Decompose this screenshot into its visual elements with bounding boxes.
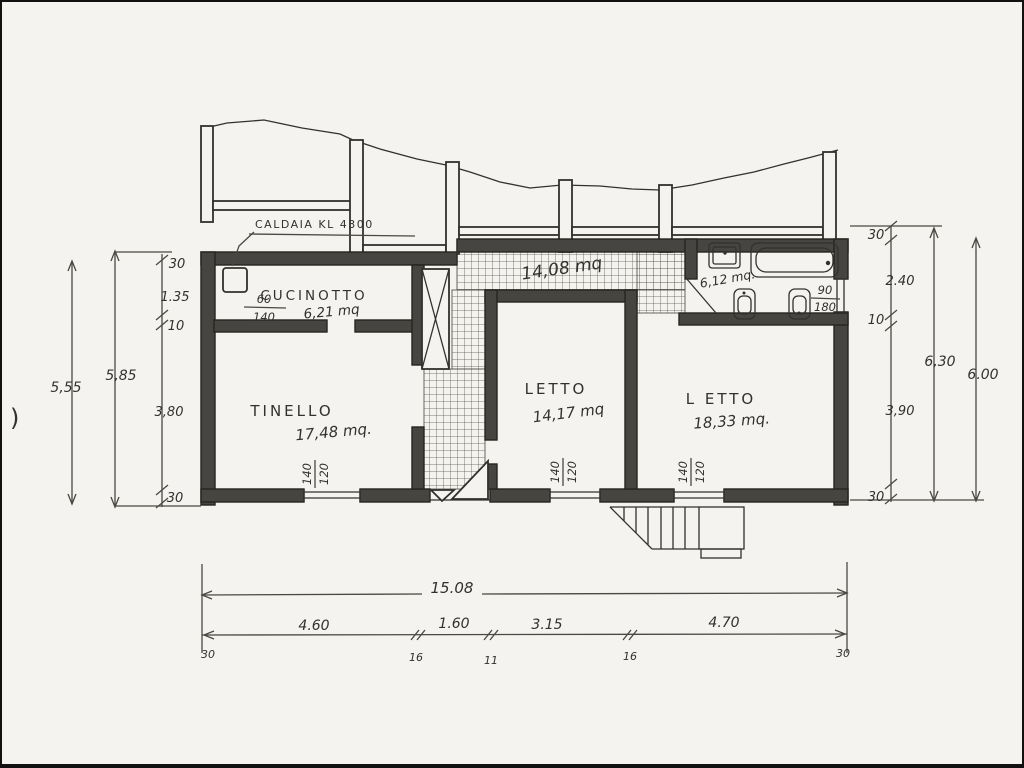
bottom-wall-d xyxy=(600,489,674,502)
letto1-left-wall xyxy=(485,290,497,440)
shaft-box xyxy=(422,269,449,369)
bath-left-wall xyxy=(685,239,697,279)
dim-left-c1: 1.35 xyxy=(161,290,190,305)
dim-right-c1: 2.40 xyxy=(886,274,915,289)
caldaia-underline xyxy=(249,234,415,236)
top-wall-right xyxy=(457,239,848,252)
window-bath xyxy=(834,279,848,312)
dim-right-c3: 3,90 xyxy=(886,404,915,419)
dim-left-c3: 3,80 xyxy=(155,405,184,420)
window-label-letto1: 140 120 xyxy=(548,458,579,486)
sink xyxy=(709,243,740,268)
corridor-side-band xyxy=(452,290,485,369)
tinello-name: TINELLO xyxy=(249,402,333,420)
letto-divider-wall xyxy=(625,290,637,489)
letto1-top-wall xyxy=(485,290,637,302)
bathtub xyxy=(751,243,838,277)
dim-bottom-t1: 16 xyxy=(409,651,423,664)
window-label-tinello: 140 120 xyxy=(300,460,331,488)
stairs-landing-step xyxy=(701,549,741,558)
dim-bottom-t4: 30 xyxy=(836,647,850,660)
bath-window-top: 90 xyxy=(818,283,833,297)
dim-left-outer: 5,55 xyxy=(50,380,81,396)
floor-plan-drawing: CALDAIA KL 4300 60 140 6,12 mq. xyxy=(2,2,1022,764)
dimensions-right: 30 2.40 10 3,90 30 6,30 6.00 xyxy=(850,221,999,505)
svg-text:140: 140 xyxy=(548,461,562,483)
bottom-wall-c xyxy=(490,489,550,502)
letto2-area: 18,33 mq. xyxy=(693,409,771,432)
dim-bottom-t0: 30 xyxy=(201,648,215,661)
floor-plan-sheet: CALDAIA KL 4300 60 140 6,12 mq. xyxy=(0,0,1024,768)
bottom-wall-b xyxy=(360,489,430,502)
svg-text:120: 120 xyxy=(317,463,331,485)
tinello-area: 17,48 mq. xyxy=(295,420,373,445)
dim-bottom-t3: 16 xyxy=(623,650,637,663)
balcony-divider-1 xyxy=(350,140,363,254)
svg-text:140: 140 xyxy=(300,463,314,485)
dim-left-c2: 10 xyxy=(168,319,185,334)
svg-text:140: 140 xyxy=(676,461,690,483)
balcony-rail-2 xyxy=(459,227,559,235)
balcony-terrace xyxy=(201,120,838,254)
dim-bottom-c2: 3.15 xyxy=(531,617,562,633)
letto2-name: L ETTO xyxy=(686,390,756,408)
bath-window-bottom: 180 xyxy=(814,300,836,314)
letto1-name: LETTO xyxy=(525,380,588,398)
dimensions-bottom: 15.08 4.60 1.60 3.15 4.70 30 16 11 16 30 xyxy=(201,562,850,667)
svg-text:120: 120 xyxy=(565,461,579,483)
dim-right-outer-total: 6.00 xyxy=(967,367,998,383)
dim-left-c0: 30 xyxy=(169,257,186,272)
bath-area-label: 6,12 mq. xyxy=(699,266,757,290)
dim-right-c4: 30 xyxy=(868,490,885,505)
balcony-wall-left xyxy=(201,126,213,222)
boiler-size-bottom: 140 xyxy=(253,310,275,324)
dim-bottom-c3: 4.70 xyxy=(708,615,739,631)
window-letto1 xyxy=(550,489,600,502)
dim-bottom-total: 15.08 xyxy=(431,579,474,597)
corridor-entry-leg xyxy=(424,369,485,489)
dim-right-inner-total: 6,30 xyxy=(924,354,955,370)
balcony-wall-right xyxy=(823,152,836,240)
cucinotto-area: 6,21 mq xyxy=(303,302,361,323)
dim-right-c2: 10 xyxy=(868,313,885,328)
window-letto2 xyxy=(674,489,724,502)
cucinotto-wall-b xyxy=(355,320,414,332)
window-tinello xyxy=(304,489,360,502)
balcony-rail-4 xyxy=(672,227,823,235)
letto2-top-wall xyxy=(679,313,848,325)
boiler-box xyxy=(223,268,247,292)
dim-right-c0: 30 xyxy=(868,228,885,243)
window-size-labels: 140 120 140 120 140 120 xyxy=(300,458,707,488)
external-stairs xyxy=(610,507,744,558)
caldaia-label: CALDAIA KL 4300 xyxy=(255,218,374,231)
dimensions-left: 5,55 5,85 30 1.35 10 3,80 30 xyxy=(50,251,201,508)
stray-pen-mark: ) xyxy=(10,404,19,432)
torn-edge-line xyxy=(201,120,838,190)
corridor-bath-strip xyxy=(637,252,685,313)
letto1-area: 14,17 mq xyxy=(532,400,606,427)
corridor-hatched-floor xyxy=(424,252,685,489)
left-wall xyxy=(201,252,215,505)
bottom-wall-a xyxy=(201,489,304,502)
dim-left-inner: 5,85 xyxy=(105,368,136,384)
balcony-rail-1 xyxy=(213,201,352,210)
stairs-landing xyxy=(699,507,744,549)
tinello-right-wall-lower xyxy=(412,427,424,489)
dim-left-c4: 30 xyxy=(167,491,184,506)
balcony-rail-3 xyxy=(572,227,659,235)
svg-text:120: 120 xyxy=(693,461,707,483)
dim-bottom-c1: 1.60 xyxy=(438,616,469,632)
bottom-wall-e xyxy=(724,489,848,502)
dim-bottom-t2: 11 xyxy=(484,654,498,667)
right-wall-lower xyxy=(834,312,848,505)
bathroom-fixtures: 6,12 mq. 90 180 xyxy=(686,243,840,319)
dim-bottom-c0: 4.60 xyxy=(298,618,329,634)
top-wall-left xyxy=(201,252,457,265)
window-label-letto2: 140 120 xyxy=(676,458,707,486)
